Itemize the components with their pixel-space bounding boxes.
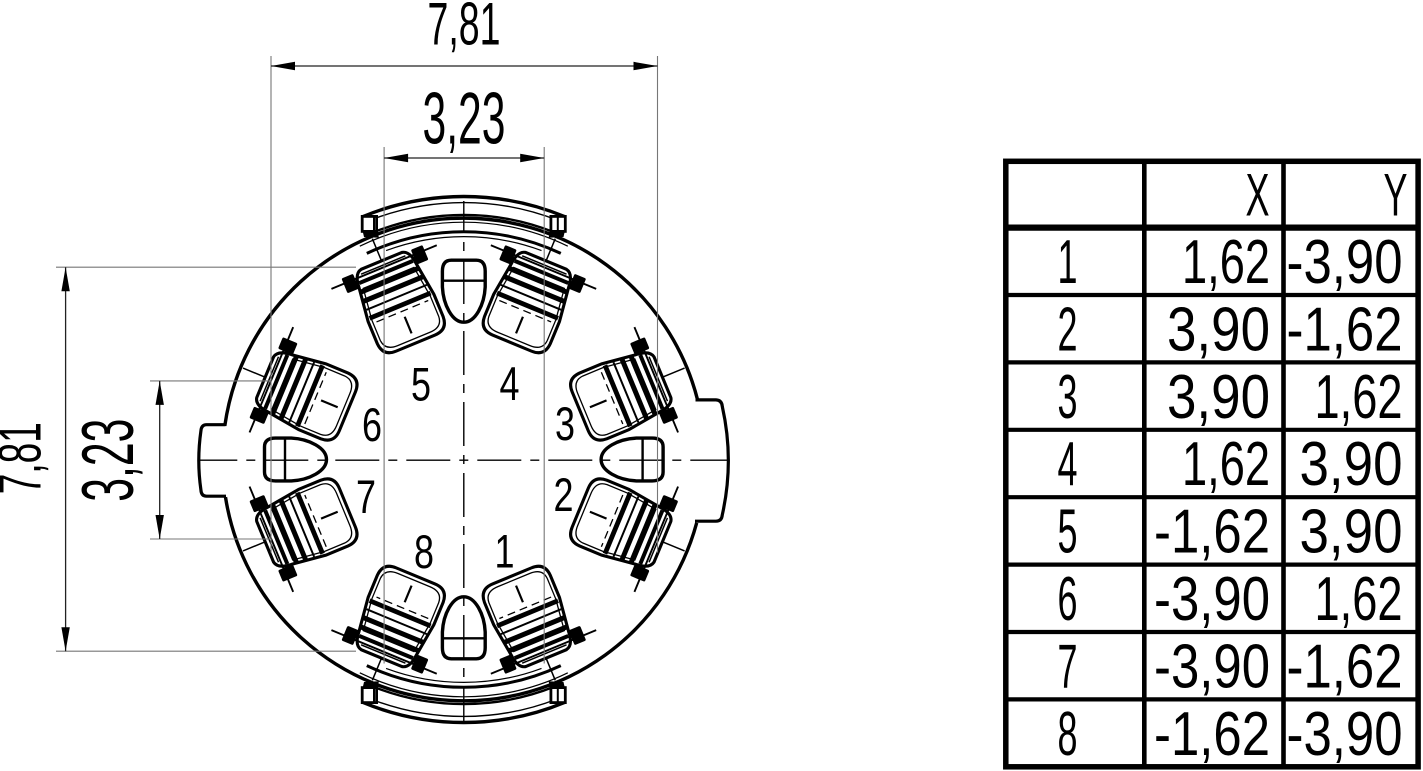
- svg-text:1,62: 1,62: [1182, 430, 1270, 499]
- svg-text:Y: Y: [1384, 162, 1408, 229]
- svg-text:6: 6: [1058, 565, 1078, 634]
- svg-text:-3,90: -3,90: [1287, 228, 1403, 297]
- svg-text:1,62: 1,62: [1315, 363, 1403, 432]
- svg-text:3,23: 3,23: [423, 79, 506, 160]
- svg-text:-3,90: -3,90: [1287, 700, 1403, 769]
- svg-text:7,81: 7,81: [428, 0, 501, 58]
- svg-text:1,62: 1,62: [1182, 228, 1270, 297]
- svg-text:6: 6: [362, 399, 382, 452]
- svg-text:8: 8: [414, 526, 434, 579]
- svg-text:7: 7: [1058, 632, 1078, 701]
- svg-text:1: 1: [495, 526, 515, 579]
- svg-text:2: 2: [554, 469, 574, 522]
- svg-text:5: 5: [1058, 498, 1078, 567]
- svg-text:-1,62: -1,62: [1154, 700, 1270, 769]
- svg-text:3,90: 3,90: [1300, 498, 1403, 567]
- svg-text:4: 4: [1058, 430, 1078, 499]
- svg-text:2: 2: [1058, 295, 1078, 364]
- svg-text:3: 3: [1058, 363, 1078, 432]
- svg-text:-1,62: -1,62: [1287, 632, 1403, 701]
- svg-text:-1,62: -1,62: [1287, 295, 1403, 364]
- svg-text:X: X: [1246, 162, 1270, 229]
- svg-text:1,62: 1,62: [1315, 565, 1403, 634]
- svg-text:-3,90: -3,90: [1154, 565, 1270, 634]
- svg-text:3,23: 3,23: [68, 419, 149, 502]
- svg-text:7: 7: [356, 471, 376, 524]
- svg-text:-3,90: -3,90: [1154, 632, 1270, 701]
- svg-text:3,90: 3,90: [1300, 430, 1403, 499]
- svg-text:3,90: 3,90: [1167, 363, 1270, 432]
- svg-text:7,81: 7,81: [0, 422, 54, 494]
- svg-text:3: 3: [555, 398, 575, 451]
- svg-text:8: 8: [1058, 700, 1078, 769]
- svg-text:1: 1: [1058, 228, 1078, 297]
- svg-text:3,90: 3,90: [1167, 295, 1270, 364]
- svg-text:-1,62: -1,62: [1154, 498, 1270, 567]
- svg-text:4: 4: [500, 358, 520, 411]
- svg-text:5: 5: [411, 359, 431, 412]
